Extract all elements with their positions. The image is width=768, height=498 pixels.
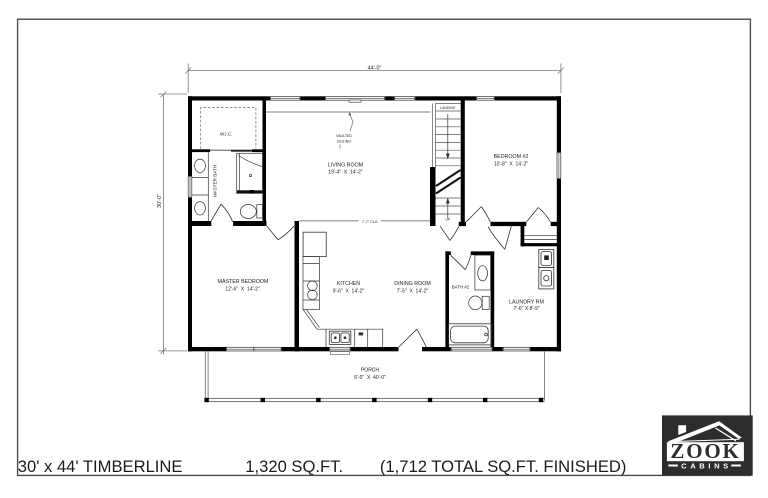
svg-text:7'-6" X 8'-9": 7'-6" X 8'-9" bbox=[513, 306, 539, 312]
svg-text:CEILING: CEILING bbox=[337, 140, 352, 144]
svg-text:19'-4" X 14'-2": 19'-4" X 14'-2" bbox=[328, 170, 363, 176]
svg-text:MASTER BATH: MASTER BATH bbox=[213, 165, 218, 197]
svg-text:ZOOK: ZOOK bbox=[670, 439, 740, 463]
svg-text:7'-7" CLG: 7'-7" CLG bbox=[362, 220, 378, 224]
svg-text:(1,712 TOTAL SQ.FT. FINISHED): (1,712 TOTAL SQ.FT. FINISHED) bbox=[380, 457, 627, 476]
svg-text:UP: UP bbox=[445, 218, 450, 222]
svg-text:7'-5" X 14'-2": 7'-5" X 14'-2" bbox=[397, 288, 429, 294]
svg-text:6'-0" X 40'-0": 6'-0" X 40'-0" bbox=[354, 375, 386, 381]
svg-text:LAUNDRY RM: LAUNDRY RM bbox=[509, 299, 544, 305]
svg-text:9'-6" X 14'-2": 9'-6" X 14'-2" bbox=[333, 288, 365, 294]
svg-text:BATH #2: BATH #2 bbox=[452, 285, 470, 290]
svg-text:12'-6" X 14'-2": 12'-6" X 14'-2" bbox=[225, 286, 260, 292]
svg-text:LANDING: LANDING bbox=[440, 106, 455, 110]
svg-text:MASTER BEDROOM: MASTER BEDROOM bbox=[218, 279, 269, 285]
svg-text:DINING ROOM: DINING ROOM bbox=[394, 281, 431, 287]
svg-text:KITCHEN: KITCHEN bbox=[337, 281, 360, 287]
svg-text:10'-8" X 14'-2": 10'-8" X 14'-2" bbox=[494, 161, 529, 167]
svg-text:VAULTED: VAULTED bbox=[336, 134, 352, 138]
svg-text:30' x 44' TIMBERLINE: 30' x 44' TIMBERLINE bbox=[18, 457, 183, 476]
svg-text:1,320 SQ.FT.: 1,320 SQ.FT. bbox=[245, 457, 343, 476]
svg-text:W.I.C.: W.I.C. bbox=[220, 132, 233, 137]
svg-text:CABINS: CABINS bbox=[681, 462, 732, 471]
svg-text:BEDROOM #2: BEDROOM #2 bbox=[494, 154, 529, 160]
svg-text:PORCH: PORCH bbox=[361, 368, 379, 374]
svg-text:LIVING ROOM: LIVING ROOM bbox=[328, 162, 363, 168]
